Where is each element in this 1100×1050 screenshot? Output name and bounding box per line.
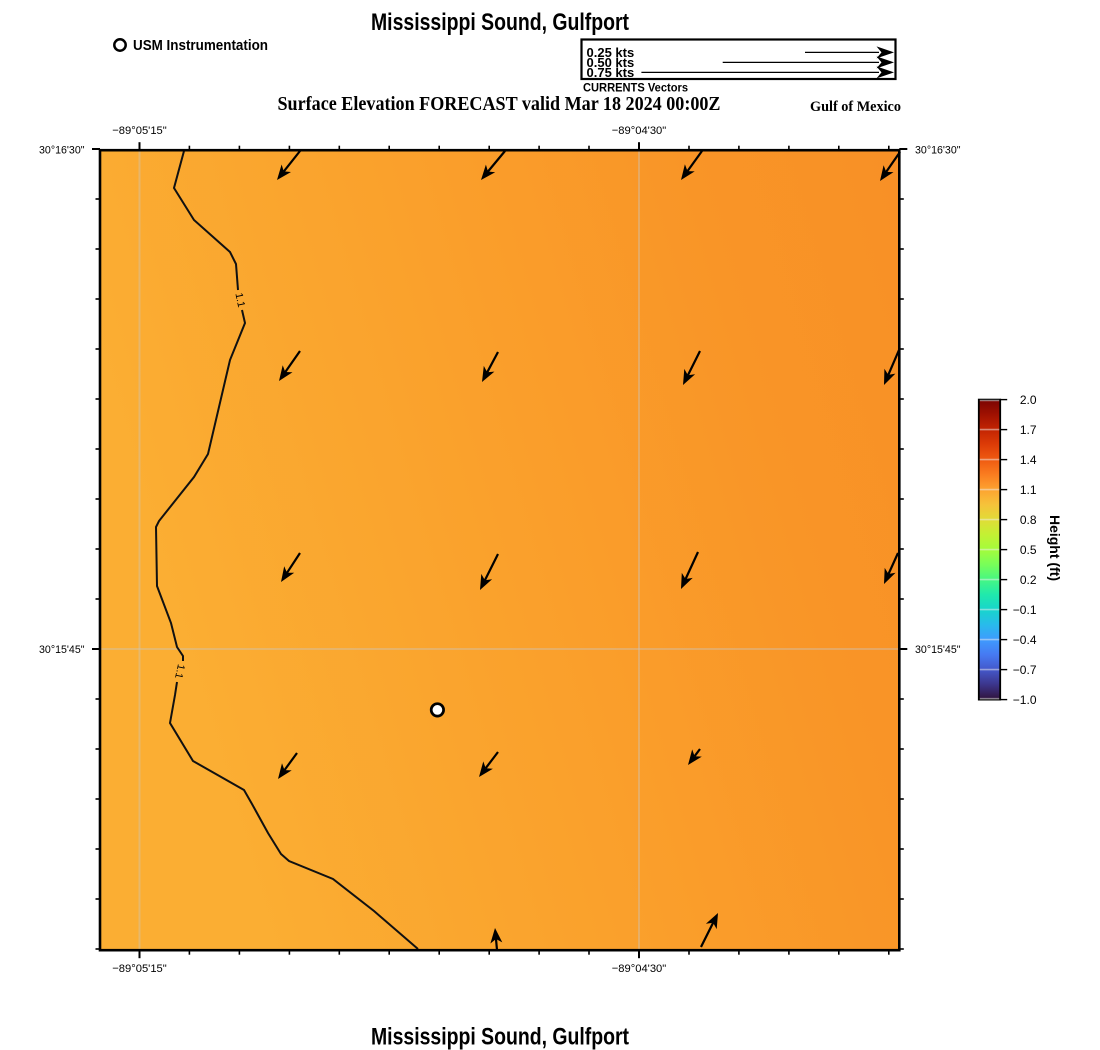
svg-text:30°15'45": 30°15'45" xyxy=(915,644,961,656)
svg-text:−0.4: −0.4 xyxy=(1013,633,1037,647)
svg-text:USM Instrumentation: USM Instrumentation xyxy=(133,37,268,54)
svg-text:1.1: 1.1 xyxy=(1020,483,1037,497)
svg-text:Height (ft): Height (ft) xyxy=(1047,515,1063,581)
svg-text:−89°05'15": −89°05'15" xyxy=(112,125,167,137)
svg-text:Surface Elevation FORECAST val: Surface Elevation FORECAST valid Mar 18 … xyxy=(278,93,721,115)
svg-text:0.2: 0.2 xyxy=(1020,573,1037,587)
svg-text:−0.1: −0.1 xyxy=(1013,603,1037,617)
svg-text:2.0: 2.0 xyxy=(1020,393,1037,407)
svg-text:−0.7: −0.7 xyxy=(1013,663,1037,677)
svg-text:−89°04'30": −89°04'30" xyxy=(612,963,667,975)
svg-text:1.7: 1.7 xyxy=(1020,423,1037,437)
svg-text:−89°04'30": −89°04'30" xyxy=(612,125,667,137)
svg-text:Gulf of Mexico: Gulf of Mexico xyxy=(810,99,901,115)
svg-text:0.8: 0.8 xyxy=(1020,513,1037,527)
svg-text:Mississippi Sound, Gulfport: Mississippi Sound, Gulfport xyxy=(371,9,629,36)
svg-text:0.5: 0.5 xyxy=(1020,543,1037,557)
svg-text:0.75 kts: 0.75 kts xyxy=(587,65,635,80)
svg-text:Mississippi Sound, Gulfport: Mississippi Sound, Gulfport xyxy=(371,1024,629,1050)
svg-text:−1.0: −1.0 xyxy=(1013,693,1037,707)
svg-text:30°15'45": 30°15'45" xyxy=(39,644,85,656)
svg-text:30°16'30": 30°16'30" xyxy=(915,144,961,156)
svg-text:1.4: 1.4 xyxy=(1020,453,1037,467)
svg-text:−89°05'15": −89°05'15" xyxy=(112,963,167,975)
svg-text:30°16'30": 30°16'30" xyxy=(39,144,85,156)
